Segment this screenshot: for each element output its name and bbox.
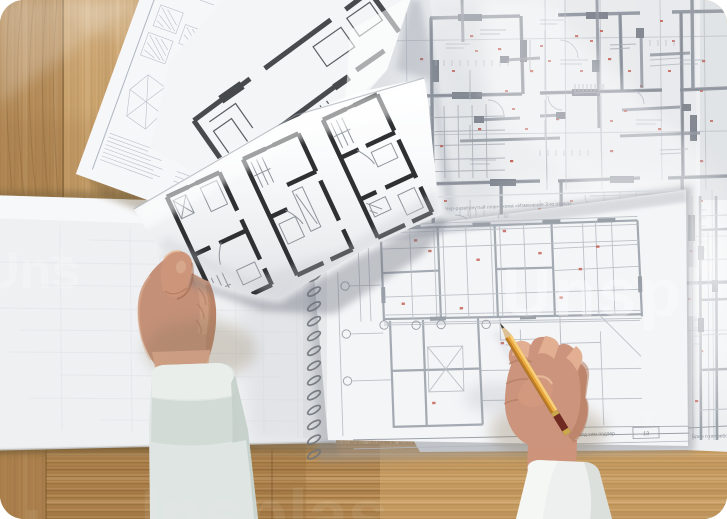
svg-text:+: + (544, 0, 570, 44)
svg-text:Insplas: Insplas (140, 476, 388, 519)
svg-text:Unspl: Unspl (502, 255, 706, 331)
svg-text:U: U (0, 496, 42, 519)
svg-text:Брин о потребован: Брин о потребован (692, 433, 727, 440)
svg-text:1 : 50: 1 : 50 (497, 214, 509, 220)
svg-text:+: + (636, 393, 659, 437)
svg-text:+: + (50, 237, 73, 281)
